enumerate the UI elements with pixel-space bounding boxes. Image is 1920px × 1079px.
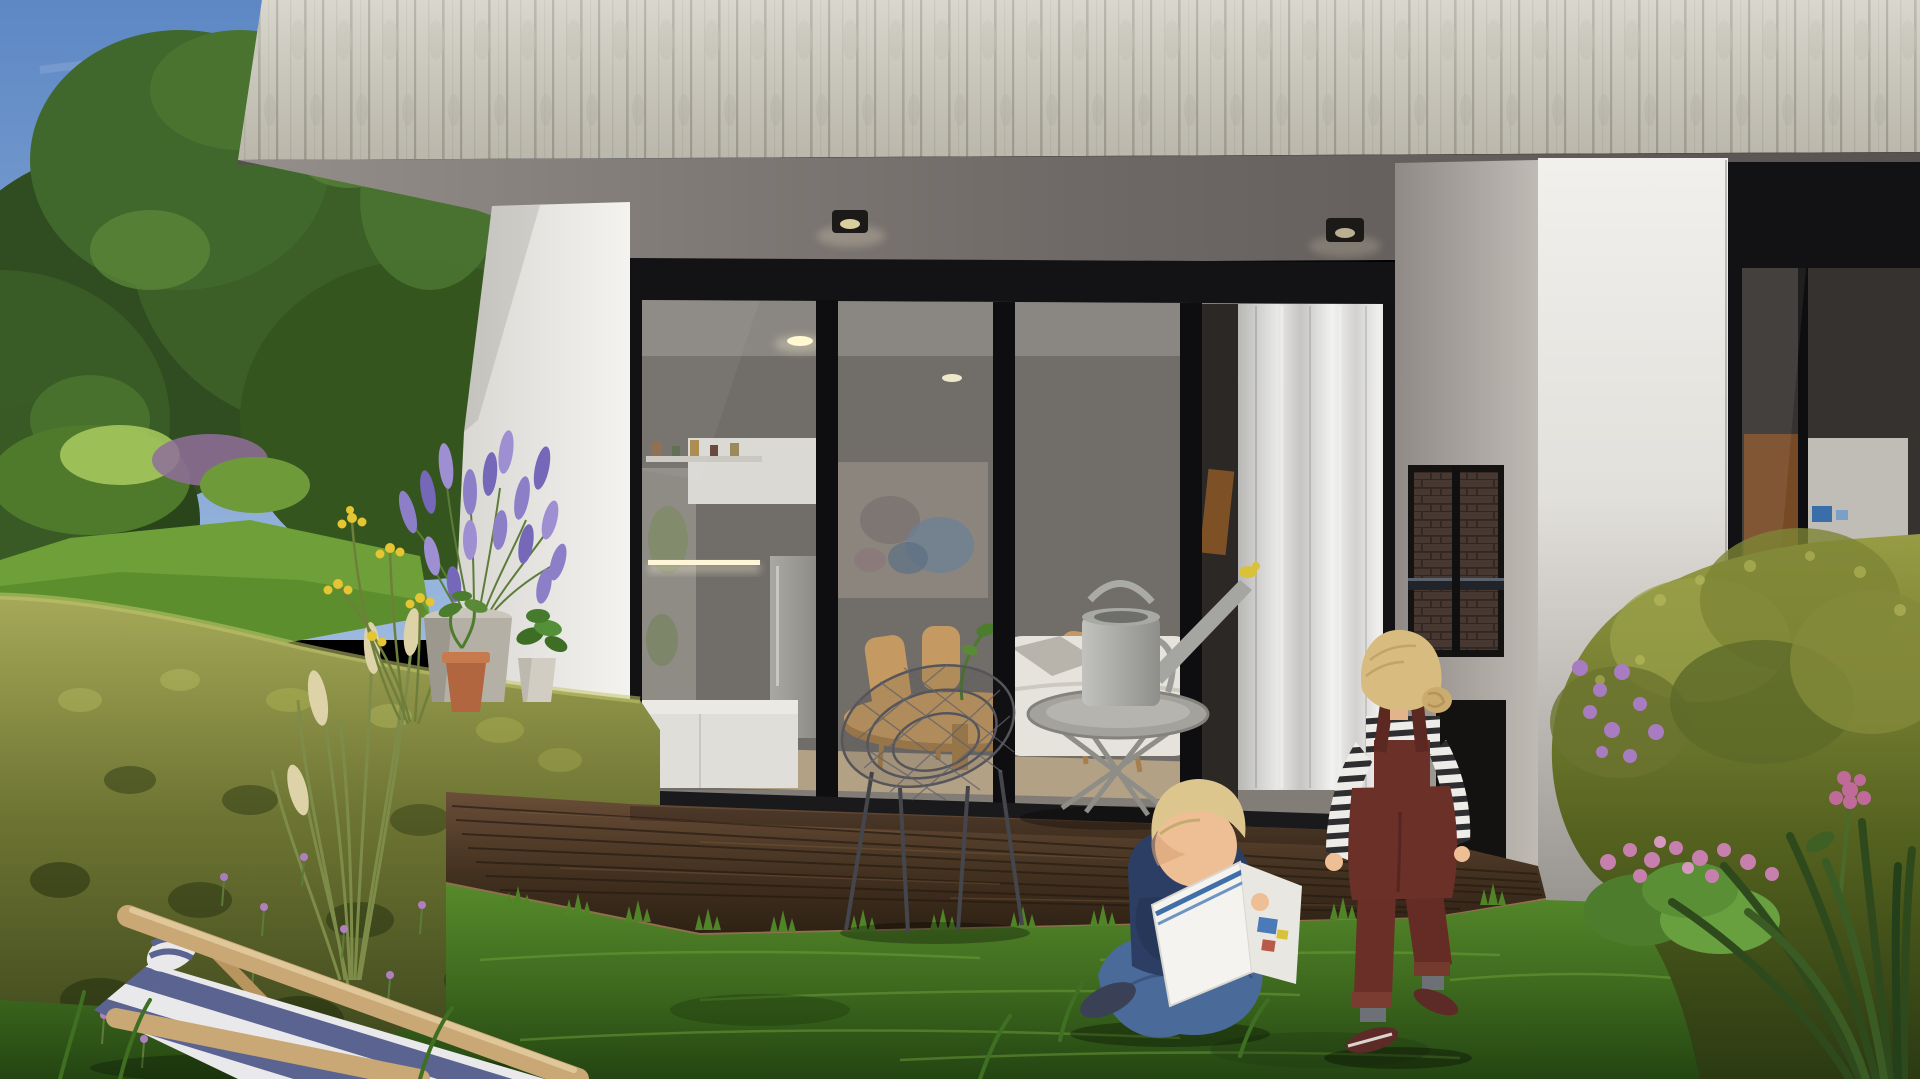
fireplace-divider <box>1452 465 1460 657</box>
girl-shadow <box>1324 1047 1472 1069</box>
plant-leaf <box>526 609 550 623</box>
scene-canvas <box>0 0 1920 1079</box>
shelf-jar <box>710 445 718 456</box>
mullion <box>1180 303 1202 815</box>
trouser-cuff <box>1352 992 1392 1008</box>
toy-bird-head <box>1252 562 1260 570</box>
sapling-leaf <box>452 591 472 601</box>
shelf-jar <box>730 443 739 456</box>
girl-dungarees <box>1348 786 1457 900</box>
distant-shrub <box>200 457 310 513</box>
artwork-blotch <box>888 542 928 574</box>
wire-chair-shadow <box>840 922 1030 944</box>
ceiling-light <box>942 374 962 382</box>
page-illustration <box>1257 917 1278 934</box>
trouser-cuff <box>1414 962 1450 976</box>
kitchen-counter <box>640 700 798 714</box>
spotlight-lamp <box>1335 228 1355 238</box>
girl-hand <box>1325 853 1343 871</box>
girl-sock <box>1422 976 1444 990</box>
architectural-rendering: Photorealistic exterior rendering: moder… <box>0 0 1920 1079</box>
under-cabinet-glow <box>648 563 760 573</box>
can-opening-dark <box>1094 611 1148 623</box>
kitchen-base-cabinet <box>640 714 798 788</box>
tree-highlight <box>90 210 210 290</box>
pot-rim <box>442 652 490 663</box>
girl-sock <box>1360 1008 1386 1022</box>
can-body <box>1082 616 1160 706</box>
lawn-shade-patch <box>670 994 850 1026</box>
window-greenery <box>646 614 678 666</box>
artwork-blotch <box>854 548 886 572</box>
concrete-facade <box>238 0 1920 165</box>
hair-bun <box>1422 687 1452 713</box>
mullion <box>816 300 838 808</box>
interior-view <box>640 300 1400 804</box>
boy-hand <box>1251 893 1269 911</box>
facade-shading <box>238 0 1920 160</box>
page-illustration <box>1276 929 1288 939</box>
kitchen-window <box>642 468 696 706</box>
girl-trouser-front <box>1354 890 1396 996</box>
glass-sliding-wall <box>630 258 1400 836</box>
page-illustration <box>1261 939 1275 952</box>
neighbour-art <box>1836 510 1848 520</box>
pot-body <box>446 663 486 712</box>
bush-lump <box>1550 666 1690 778</box>
girl-hand <box>1454 846 1470 862</box>
neighbour-art <box>1812 506 1832 522</box>
glass-header-frame <box>630 258 1395 306</box>
spotlight-lamp <box>840 219 860 229</box>
fridge-handle <box>776 566 779 686</box>
